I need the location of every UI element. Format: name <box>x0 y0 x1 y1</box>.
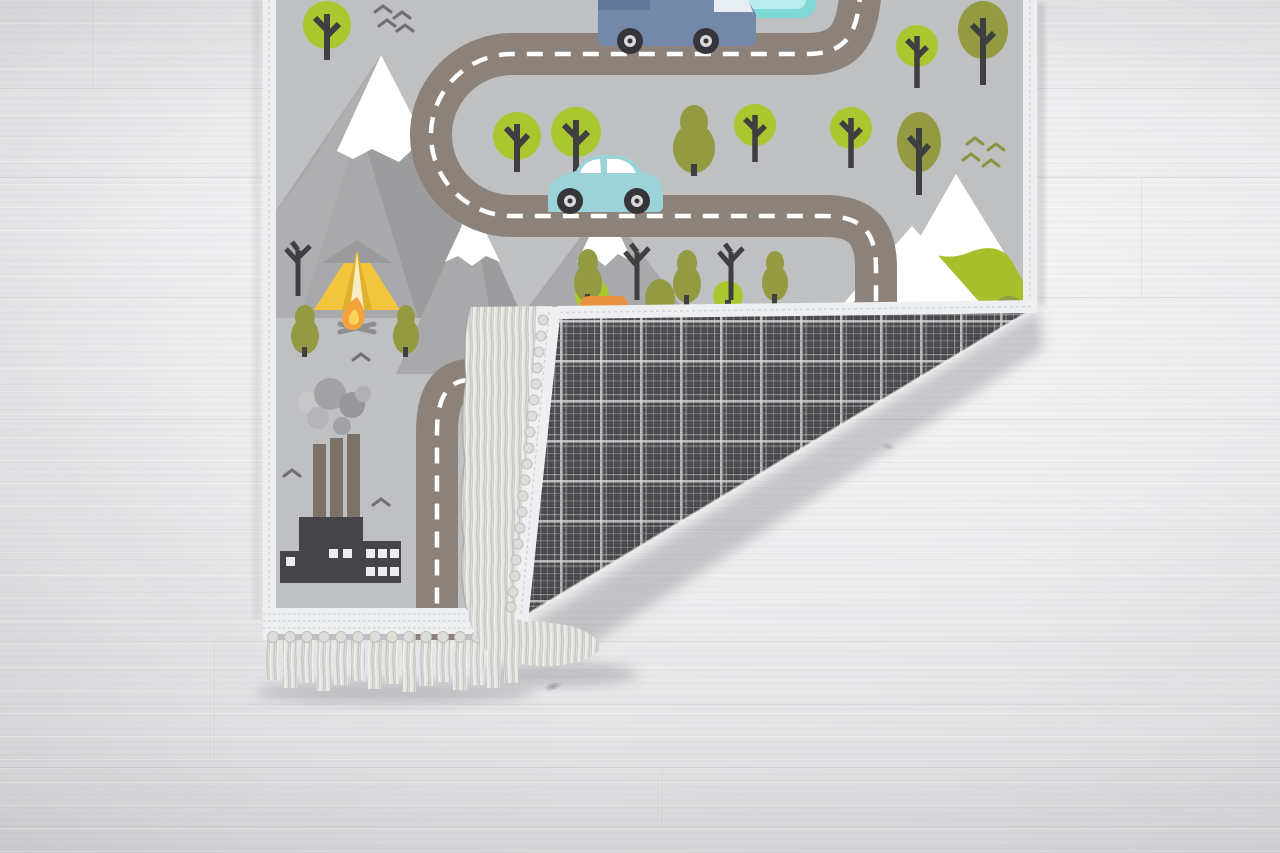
plaid-flap <box>506 300 1037 622</box>
van-windshield <box>714 0 753 12</box>
van <box>598 0 756 54</box>
shadow-right-edge <box>1036 3 1045 305</box>
smokestack <box>313 444 326 520</box>
smokestack <box>347 434 360 520</box>
smoke-puff <box>307 407 329 429</box>
smoke-puff <box>333 417 351 435</box>
shadow-left-edge <box>253 0 261 618</box>
smokestack <box>330 438 343 520</box>
product-photo <box>0 0 1280 853</box>
binding-right <box>1023 0 1037 310</box>
factory-annex-right <box>363 541 401 583</box>
factory-annex-left <box>280 551 299 583</box>
rug-scene <box>0 0 1280 853</box>
smoke-puff <box>355 386 371 402</box>
